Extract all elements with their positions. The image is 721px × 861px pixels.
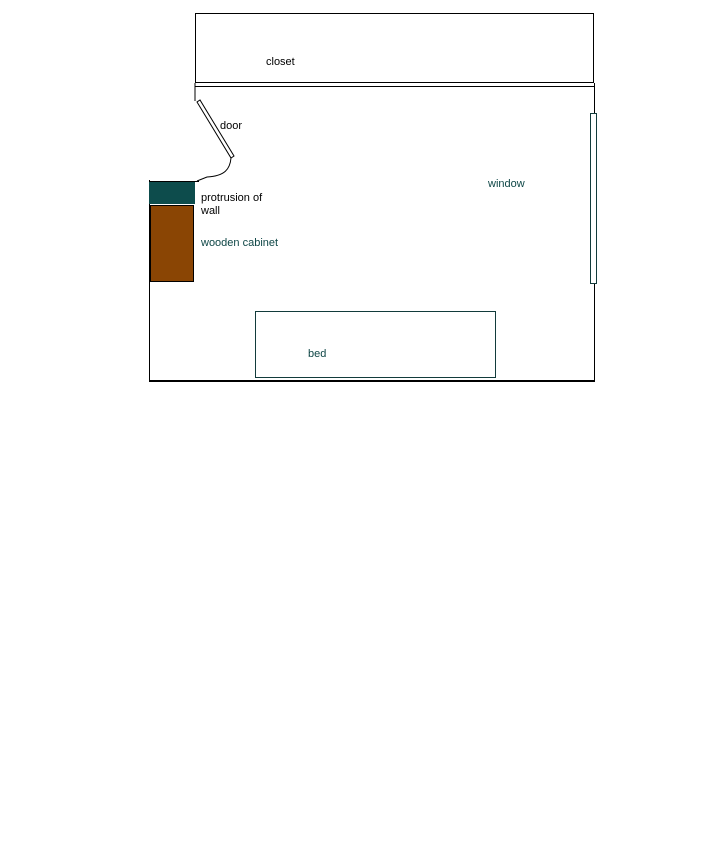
- floor-plan-canvas: closet door protrusion of wall wooden ca…: [0, 0, 721, 861]
- room-top-wall: [195, 86, 594, 87]
- protrusion-label-line1: protrusion of: [201, 192, 262, 205]
- closet-rect: [195, 13, 594, 83]
- bed-rect: [255, 311, 496, 378]
- door-label: door: [220, 120, 242, 133]
- wall-protrusion-tick: [195, 181, 199, 182]
- wooden-cabinet-rect: [150, 205, 194, 282]
- closet-label: closet: [266, 56, 295, 69]
- door-swing-arc: [197, 158, 231, 181]
- wooden-cabinet-label: wooden cabinet: [201, 237, 278, 250]
- window-label: window: [488, 178, 525, 191]
- room-bottom-wall: [149, 380, 595, 382]
- bed-label: bed: [308, 348, 326, 361]
- protrusion-label-line2: wall: [201, 205, 220, 218]
- window-rect: [590, 113, 597, 284]
- wall-protrusion-rect: [149, 181, 195, 204]
